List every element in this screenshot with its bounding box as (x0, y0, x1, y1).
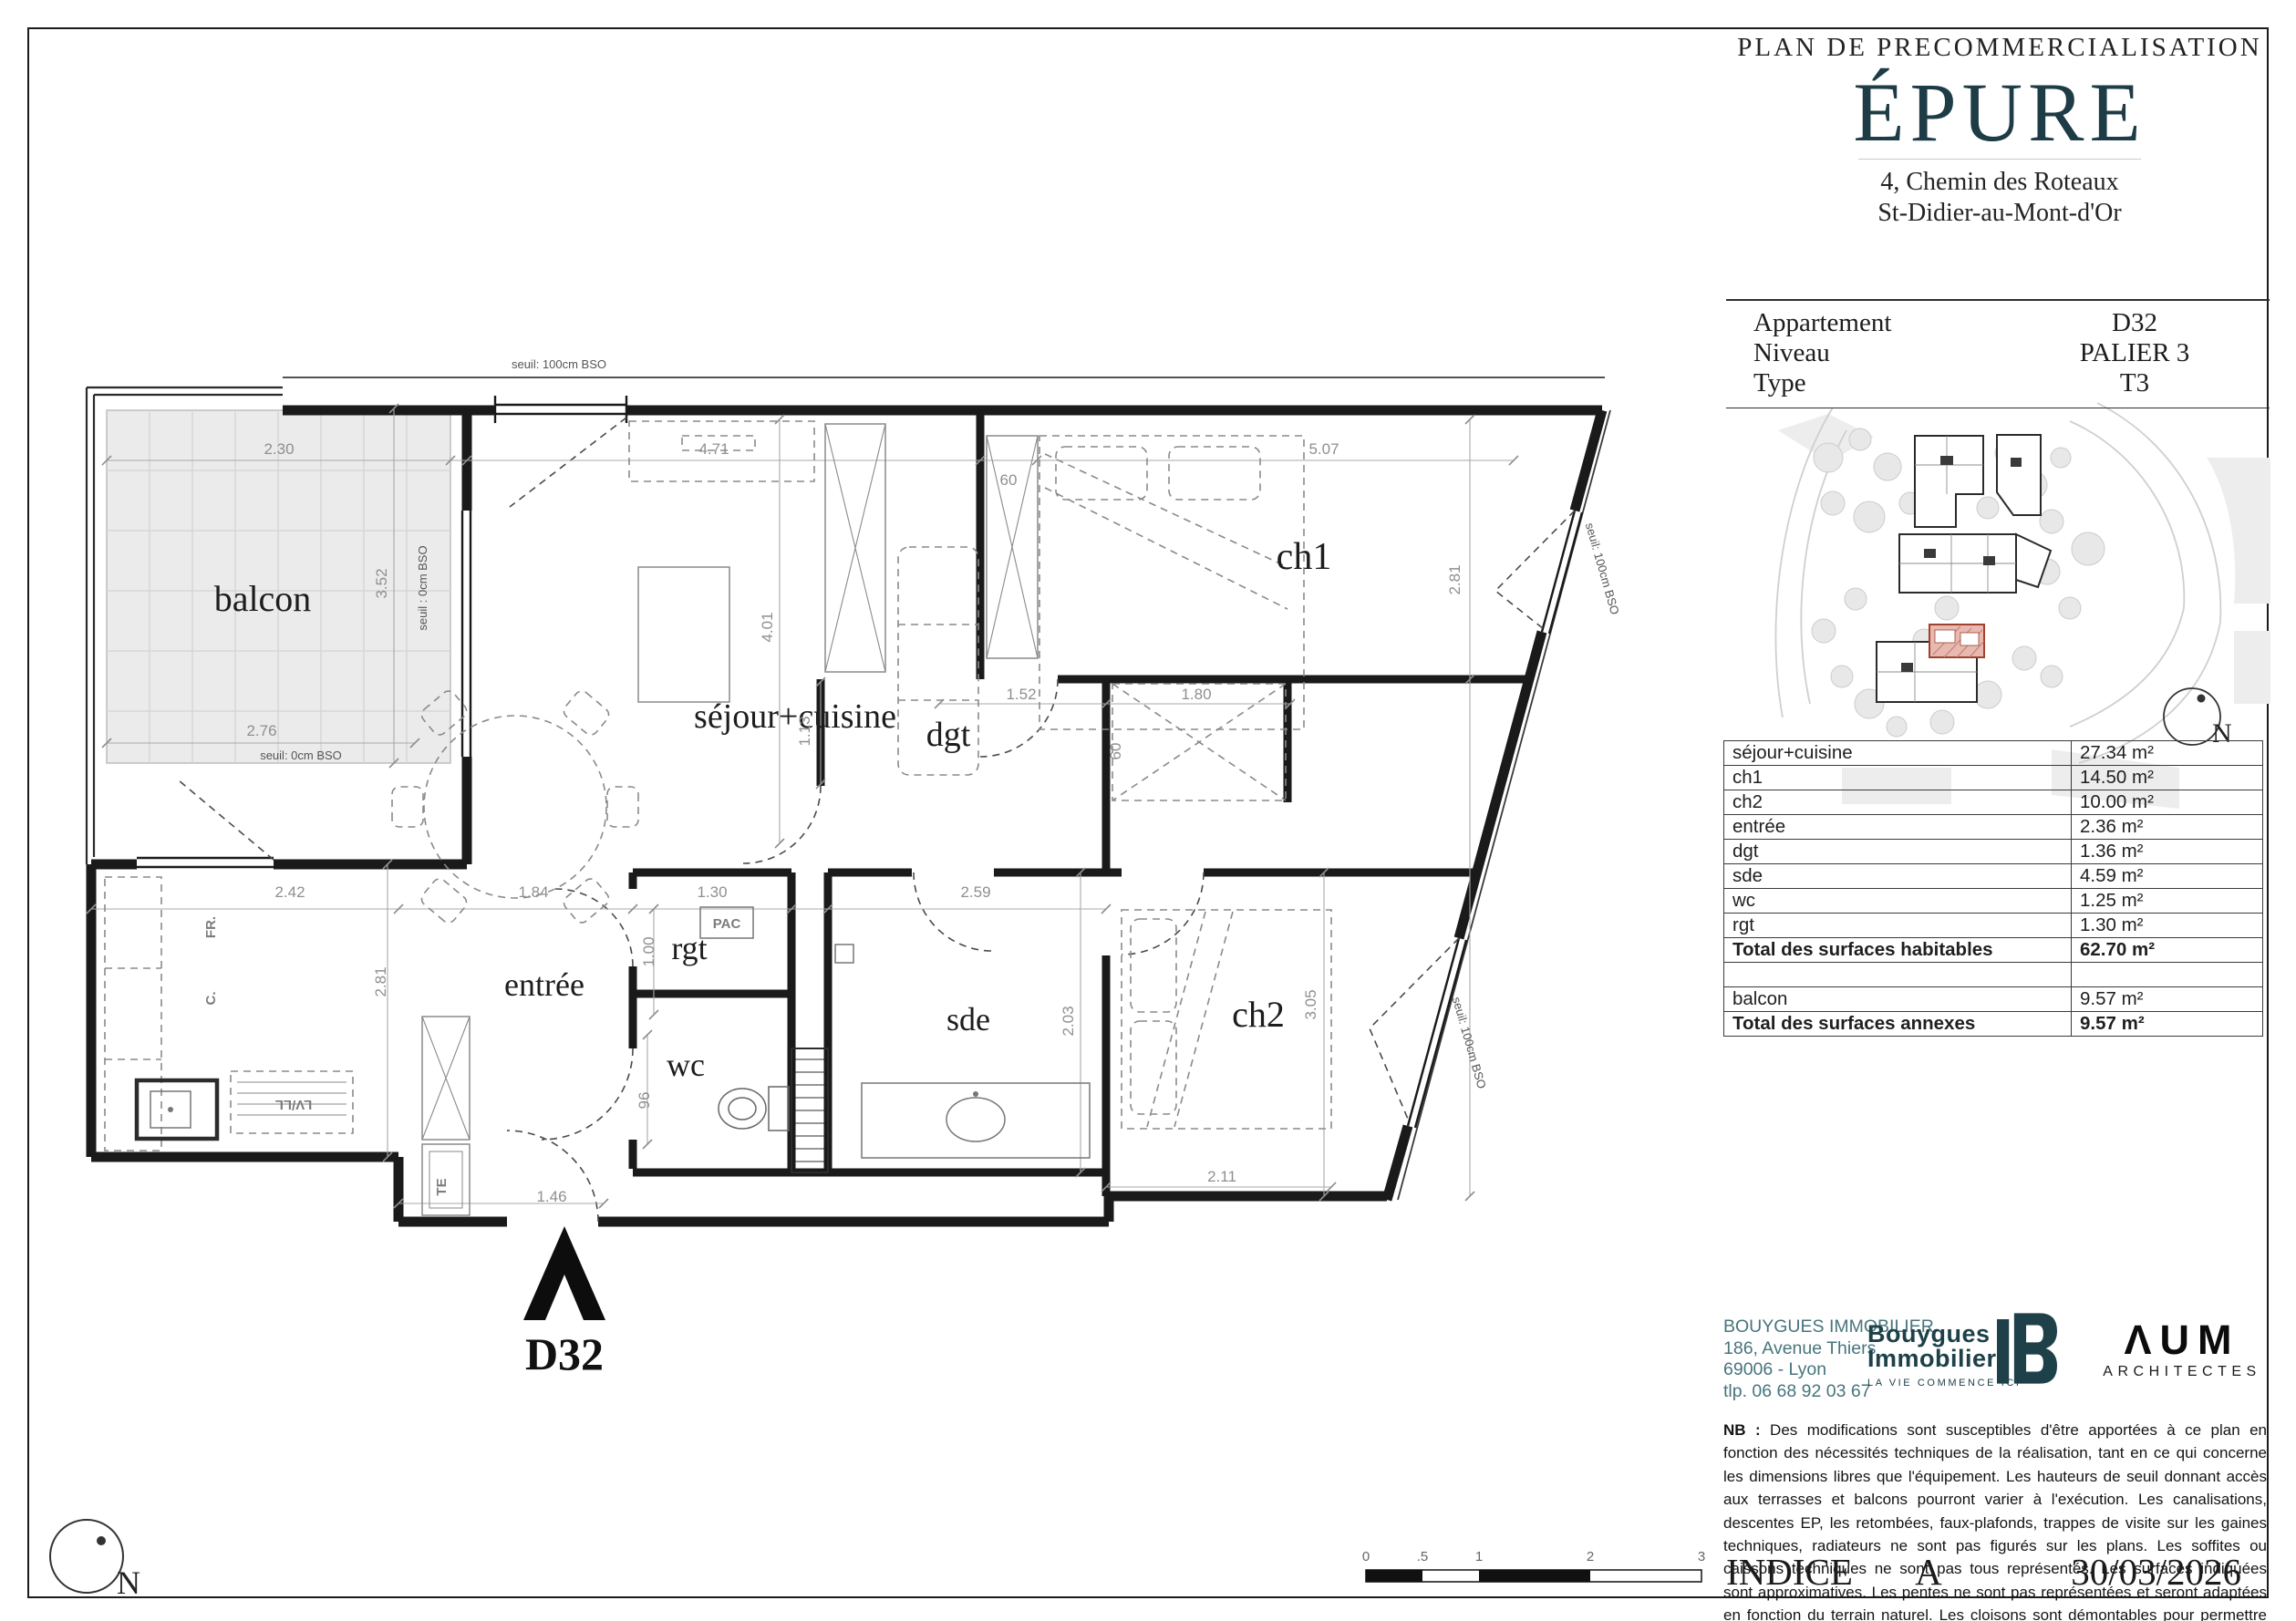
document-title: PLAN DE PRECOMMERCIALISATION (1728, 33, 2271, 63)
surface-area: 10.00 m² (2072, 790, 2263, 815)
surface-room: Total des surfaces habitables (1724, 938, 2072, 963)
nb-prefix: NB : (1723, 1421, 1761, 1439)
surfaces-table: séjour+cuisine27.34 m²ch114.50 m²ch210.0… (1723, 740, 2263, 1037)
document-page: D32 N (0, 0, 2296, 1621)
brand-logo-text: ÉPURE (1728, 68, 2271, 157)
room-label-ch1: ch1 (1277, 536, 1332, 578)
site-highlight-unit (1929, 625, 1984, 657)
sidebar-header: PLAN DE PRECOMMERCIALISATION ÉPURE 4, Ch… (1728, 33, 2271, 229)
wall-exterior-lines (283, 377, 1610, 1200)
table-row: dgt1.36 m² (1724, 840, 2263, 864)
seuil-label: seuil : 0cm BSO (416, 545, 429, 630)
dimension-label: 2.30 (264, 440, 294, 458)
info-value: PALIER 3 (2000, 338, 2270, 368)
dimension-label: 3.52 (373, 568, 390, 598)
dimension-label: 1.46 (536, 1188, 566, 1205)
north-letter: N (117, 1564, 140, 1601)
dimension-label: 1.84 (518, 883, 548, 901)
aum-architectes-logo: ΛUM ARCHITECTES (2097, 1320, 2267, 1380)
dimension-label: 4.01 (759, 612, 776, 642)
surface-area: 9.57 m² (2072, 987, 2263, 1012)
dimension-label: 1.13 (796, 716, 813, 746)
scale-label: 2 (1587, 1549, 1594, 1564)
plan-date: 30/03/2026 (1997, 1550, 2241, 1594)
room-label-dgt: dgt (926, 716, 971, 754)
dimension-label: 4.71 (698, 440, 729, 458)
label-pac: PAC (713, 916, 741, 932)
table-row: Total des surfaces habitables62.70 m² (1724, 938, 2263, 963)
dimension-label: 5.07 (1308, 440, 1339, 458)
dimension-label: 3.05 (1302, 989, 1319, 1019)
indice-value: A (1915, 1551, 1942, 1593)
aum-logo-subtext: ARCHITECTES (2097, 1364, 2267, 1380)
surface-area (2072, 963, 2263, 987)
table-row (1724, 963, 2263, 987)
label-te: TE (434, 1178, 450, 1195)
label-fridge: FR. (203, 916, 219, 938)
scale-bar (1366, 1570, 1701, 1582)
surface-room: séjour+cuisine (1724, 741, 2072, 766)
scale-label: .5 (1417, 1549, 1429, 1564)
surface-area: 1.25 m² (2072, 889, 2263, 914)
scale-label: 0 (1362, 1549, 1370, 1564)
info-label: Type (1726, 368, 2000, 398)
surface-area: 1.36 m² (2072, 840, 2263, 864)
bouygues-b-icon (1997, 1313, 2057, 1384)
room-label-entree: entrée (504, 966, 584, 1003)
table-row: balcon9.57 m² (1724, 987, 2263, 1012)
surface-area: 2.36 m² (2072, 815, 2263, 840)
label-c: C. (203, 992, 219, 1006)
surface-room: rgt (1724, 914, 2072, 938)
surface-room: balcon (1724, 987, 2072, 1012)
revision-index: INDICE A (1726, 1550, 1942, 1594)
surface-area: 62.70 m² (2072, 938, 2263, 963)
surface-room (1724, 963, 2072, 987)
info-label: Appartement (1726, 308, 2000, 338)
seuil-label: seuil: 100cm BSO (1450, 996, 1489, 1090)
info-rule-bottom (1726, 408, 2270, 409)
room-label-rgt: rgt (671, 930, 707, 966)
surface-room: Total des surfaces annexes (1724, 1012, 2072, 1037)
dimension-label: 60 (1107, 743, 1124, 760)
surface-area: 4.59 m² (2072, 864, 2263, 889)
info-value: T3 (2000, 368, 2270, 398)
apartment-info: Appartement D32 Niveau PALIER 3 Type T3 (1726, 299, 2270, 408)
entrance-arrow (523, 1226, 605, 1320)
room-label-wc: wc (667, 1047, 705, 1083)
surface-room: entrée (1724, 815, 2072, 840)
surface-area: 14.50 m² (2072, 766, 2263, 790)
info-label: Niveau (1726, 338, 2000, 368)
table-row: entrée2.36 m² (1724, 815, 2263, 840)
room-label-balcon: balcon (214, 578, 312, 619)
address-line-1: 4, Chemin des Roteaux (1728, 167, 2271, 198)
dimension-label: 1.52 (1006, 686, 1036, 703)
north-compass: N (50, 1520, 140, 1601)
room-label-sejour-cuisine: séjour+cuisine (694, 697, 896, 736)
scale-bar-labels: 0.5123 (1362, 1549, 1705, 1564)
dimension-label: 2.81 (1446, 564, 1463, 594)
table-row: wc1.25 m² (1724, 889, 2263, 914)
dimension-label: 60 (1000, 471, 1018, 489)
table-row: séjour+cuisine27.34 m² (1724, 741, 2263, 766)
dimension-label: 2.11 (1207, 1168, 1236, 1185)
info-row-niveau: Niveau PALIER 3 (1726, 338, 2270, 368)
dimension-label: 2.76 (246, 722, 276, 739)
address-line-2: St-Didier-au-Mont-d'Or (1728, 198, 2271, 229)
dimension-label: 1.00 (640, 936, 657, 966)
unit-label: D32 (525, 1328, 604, 1379)
indice-label: INDICE (1726, 1551, 1853, 1593)
info-row-appartement: Appartement D32 (1726, 308, 2270, 338)
table-row: ch114.50 m² (1724, 766, 2263, 790)
surface-room: dgt (1724, 840, 2072, 864)
aum-logo-text: ΛUM (2097, 1320, 2267, 1360)
seuil-label: seuil: 0cm BSO (260, 749, 342, 762)
info-value: D32 (2000, 308, 2270, 338)
scale-label: 3 (1698, 1549, 1705, 1564)
dimension-label: 2.81 (372, 966, 389, 996)
seuil-label: seuil: 100cm BSO (512, 357, 606, 371)
surface-area: 1.30 m² (2072, 914, 2263, 938)
label-lv-ll: LV/LL (275, 1097, 313, 1112)
surface-area: 27.34 m² (2072, 741, 2263, 766)
table-row: Total des surfaces annexes9.57 m² (1724, 1012, 2263, 1037)
dimension-label: 2.03 (1060, 1006, 1077, 1036)
surface-room: ch2 (1724, 790, 2072, 815)
table-row: rgt1.30 m² (1724, 914, 2263, 938)
dimension-label: 2.59 (960, 883, 990, 901)
surface-room: wc (1724, 889, 2072, 914)
surface-room: sde (1724, 864, 2072, 889)
dimension-label: 2.42 (274, 883, 305, 901)
dimension-label: 1.30 (697, 883, 727, 901)
table-row: sde4.59 m² (1724, 864, 2263, 889)
seuil-label: seuil: 100cm BSO (1583, 521, 1622, 616)
room-label-sde: sde (946, 1001, 990, 1038)
surface-room: ch1 (1724, 766, 2072, 790)
room-label-ch2: ch2 (1232, 994, 1285, 1035)
dimension-label: 1.80 (1181, 686, 1211, 703)
scale-label: 1 (1475, 1549, 1483, 1564)
surface-area: 9.57 m² (2072, 1012, 2263, 1037)
info-row-type: Type T3 (1726, 368, 2270, 398)
dimension-label: 96 (636, 1092, 653, 1110)
table-row: ch210.00 m² (1724, 790, 2263, 815)
